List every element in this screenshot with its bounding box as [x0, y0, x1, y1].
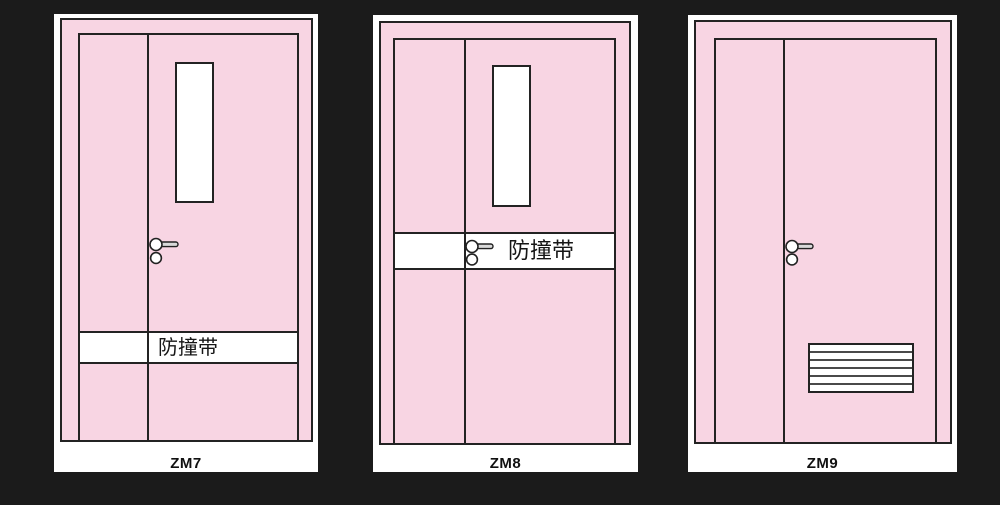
- door-figure-zm7: 防撞带 ZM7: [54, 14, 318, 472]
- louver-slat-line: [810, 367, 912, 369]
- elevation-drawing-canvas: 防撞带 ZM7 防撞带 ZM8: [0, 0, 1000, 505]
- crash-strip-label: 防撞带: [508, 240, 574, 262]
- door-handle-icon: [465, 238, 505, 272]
- louver-slat-line: [810, 383, 912, 385]
- door-code: ZM7: [54, 455, 318, 472]
- door-code: ZM8: [373, 455, 638, 472]
- louver-vent: [808, 343, 914, 393]
- door-handle-icon: [784, 238, 824, 272]
- door-handle-icon: [148, 236, 188, 270]
- louver-slat-line: [810, 375, 912, 377]
- crash-strip: 防撞带: [80, 331, 297, 364]
- crash-strip-label: 防撞带: [158, 338, 218, 358]
- door-figure-zm8: 防撞带 ZM8: [373, 15, 638, 472]
- vision-window: [492, 65, 531, 207]
- louver-slat-line: [810, 359, 912, 361]
- vision-window: [175, 62, 214, 203]
- door-figure-zm9: ZM9: [688, 15, 957, 472]
- louver-slat-line: [810, 351, 912, 353]
- door-code: ZM9: [688, 455, 957, 472]
